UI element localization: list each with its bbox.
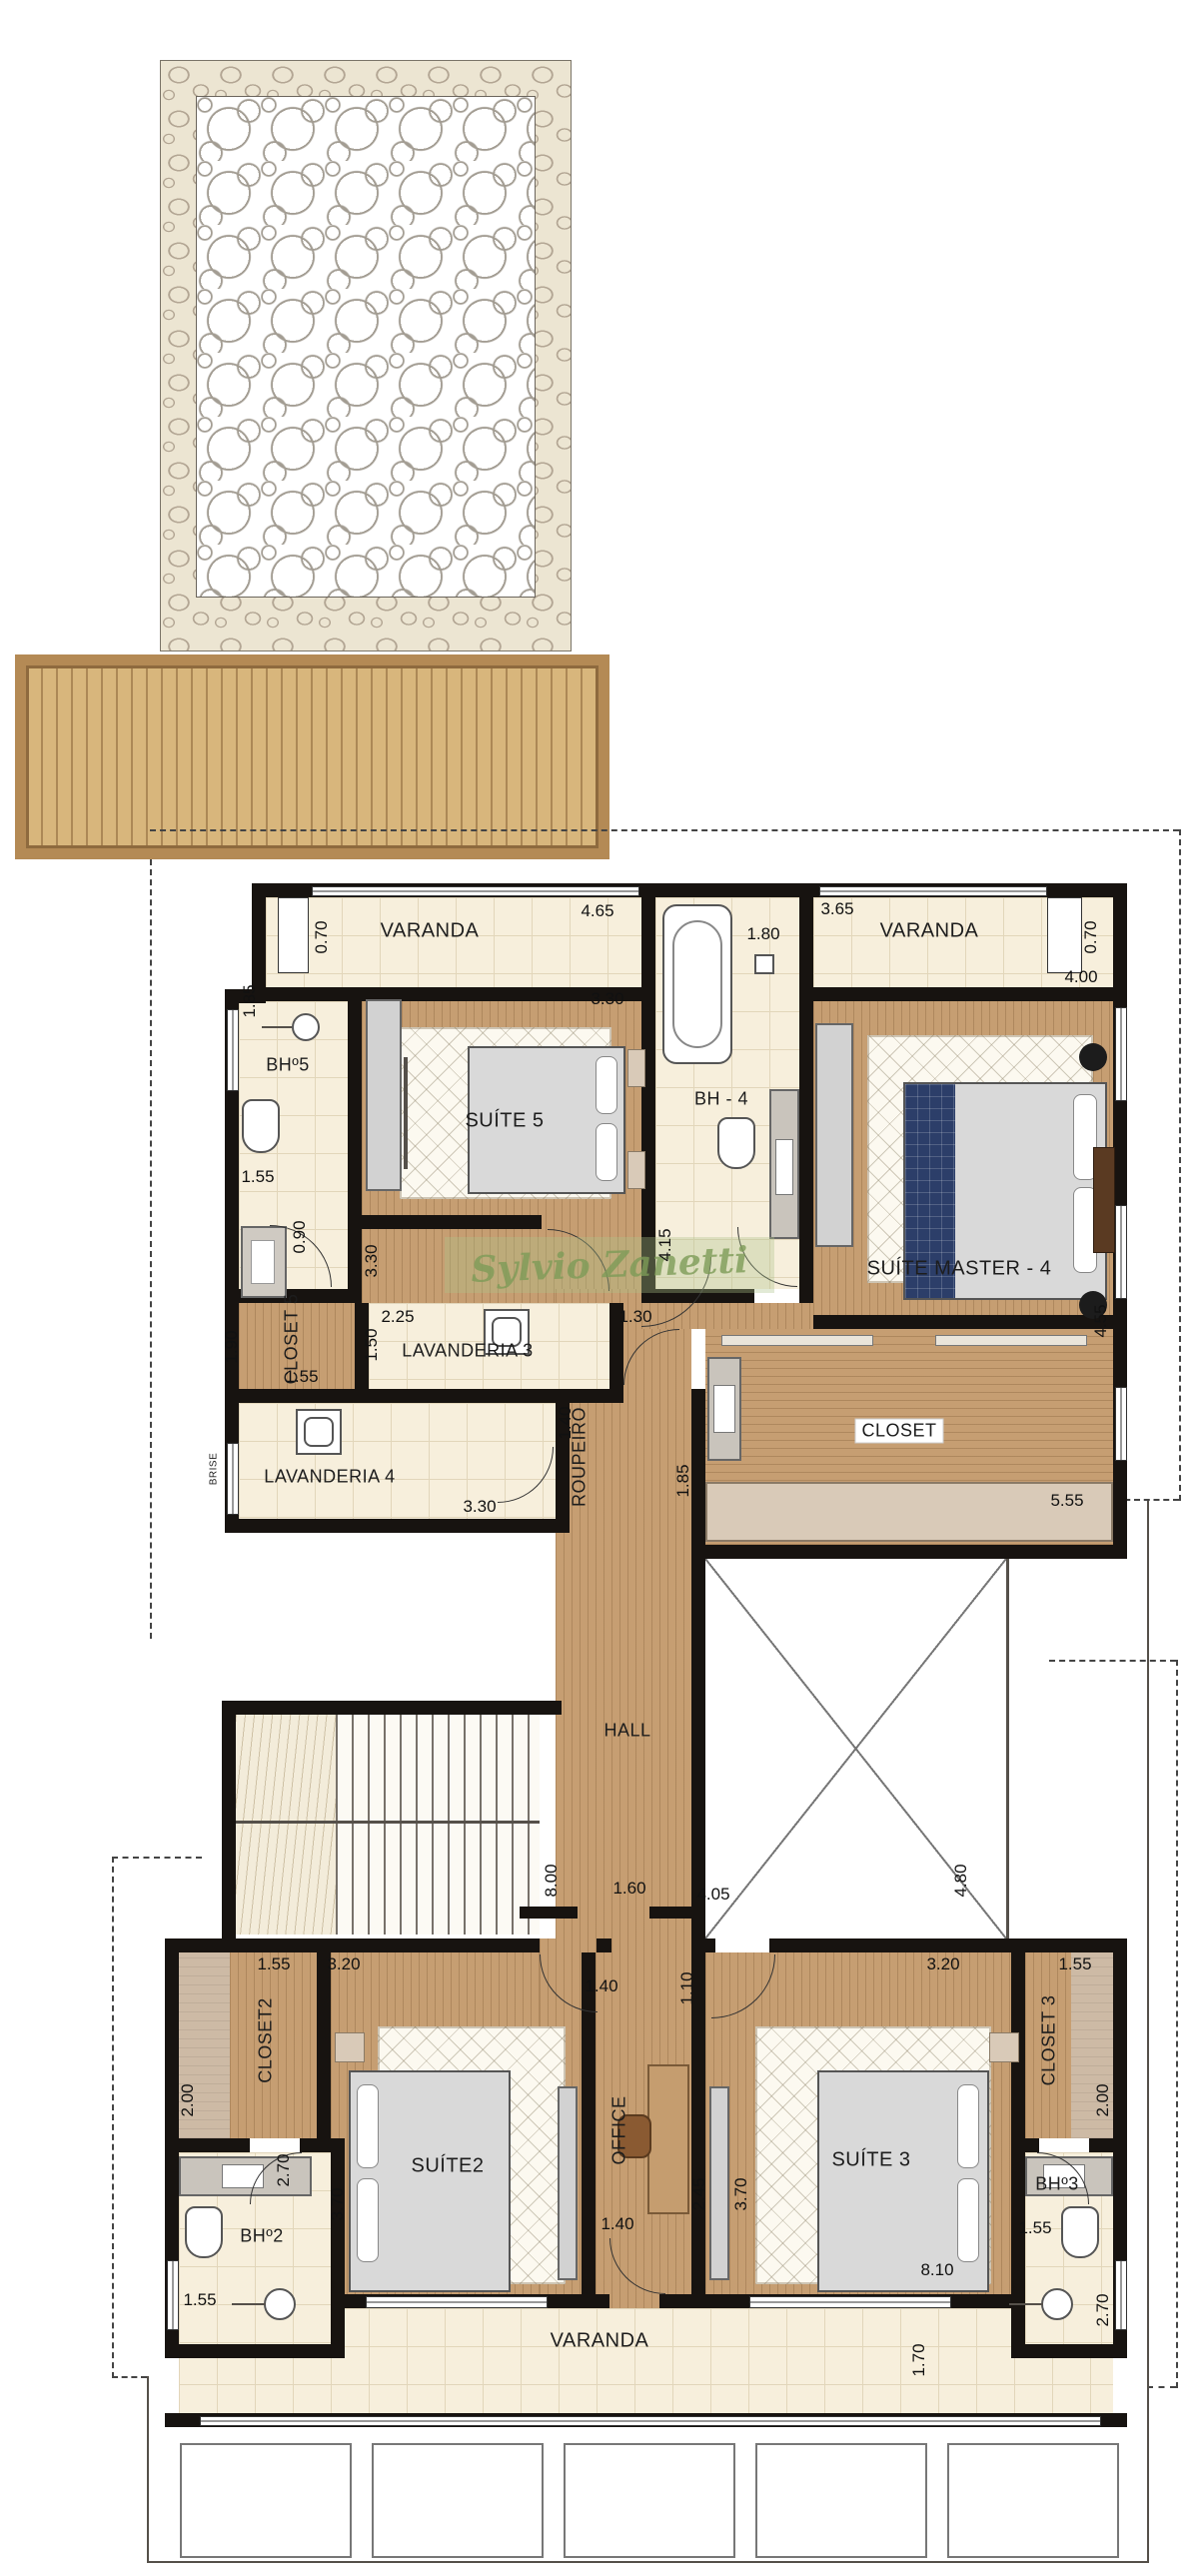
tv-console (1093, 1147, 1115, 1253)
wall (649, 1907, 705, 1919)
stairs (336, 1715, 540, 1934)
room-label-suite3: SUÍTE 3 (831, 2149, 910, 2172)
wall (691, 1389, 705, 1952)
dim-closet2-width: 1.55 (257, 1954, 290, 1974)
terrace-line-left (147, 2376, 149, 2563)
void-right-line (1006, 1559, 1009, 1938)
room-label-suite5: SUÍTE 5 (465, 1110, 544, 1133)
boundary-dashed-lower-right-bottom (1147, 2386, 1176, 2388)
pillow (957, 2178, 979, 2262)
dim-suite2-width: 3.20 (327, 1954, 360, 1974)
room-label-bh2: BHº2 (240, 2226, 284, 2247)
terrace-line-right (1147, 1501, 1149, 2562)
dim-master-width: 4.00 (1064, 967, 1097, 987)
dim-suite5-width: 3.30 (591, 989, 623, 1009)
dim-closet-master-width: 5.55 (1050, 1491, 1083, 1511)
dim-suite2-door: 1.40 (585, 1976, 617, 1996)
wall (222, 1701, 236, 1948)
boundary-dashed-lower-left-bottom (112, 2376, 147, 2378)
dim-lav4-door: 1.40 (556, 1406, 576, 1439)
wall (222, 1701, 562, 1715)
dim-bh2-lower-width: 1.55 (183, 2290, 216, 2310)
closet-rod (935, 1335, 1087, 1346)
dim-varanda-left-depth: 0.70 (312, 920, 332, 953)
dim-bh4-width: 1.80 (746, 924, 779, 944)
dim-suite5-depth: 3.30 (362, 1244, 382, 1277)
toilet (242, 1099, 280, 1153)
room-label-hall: HALL (603, 1721, 650, 1742)
wall (317, 1952, 331, 2152)
dim-varanda-bottom-depth: 1.70 (909, 2343, 929, 2376)
room-label-varanda-right: VARANDA (880, 920, 979, 943)
pillow (357, 2178, 379, 2262)
room-label-lavanderia4: LAVANDERIA 4 (264, 1467, 395, 1488)
dim-bh4-depth: 4.15 (655, 1228, 675, 1261)
dim-master-depth: 4.55 (1091, 1304, 1111, 1337)
window (1115, 2260, 1127, 2330)
wall (225, 1519, 570, 1533)
wall (165, 2344, 345, 2358)
window (749, 2296, 951, 2308)
wardrobe (366, 999, 402, 1191)
wall (165, 2138, 250, 2152)
railing-panel (947, 2443, 1119, 2558)
railing-panel (755, 2443, 927, 2558)
toilet (1061, 2206, 1099, 2258)
dim-bh5-width-top: 1.85 (240, 984, 260, 1017)
closet-rod (721, 1335, 873, 1346)
wall (659, 2294, 705, 2308)
room-label-bh3: BHº3 (1035, 2174, 1079, 2195)
dim-suite3-depth: 3.70 (731, 2177, 751, 2210)
dim-varanda-bottom-width: 8.10 (920, 2260, 953, 2280)
window (1115, 1387, 1127, 1461)
window (1115, 1205, 1127, 1299)
window (366, 2296, 548, 2308)
wall (799, 987, 1127, 1001)
pergola-roof-pattern (196, 96, 536, 598)
wall (1011, 2344, 1127, 2358)
window (200, 2416, 1101, 2426)
dim-closet5-width: 1.55 (285, 1367, 318, 1387)
faucet-line (1009, 2303, 1043, 2305)
wall (1011, 2138, 1025, 2358)
toilet (717, 1117, 755, 1169)
nightstand (989, 2032, 1019, 2062)
boundary-dashed-lower-left (112, 1857, 114, 2378)
terrace-line-bottom (147, 2561, 1149, 2563)
window (1115, 1007, 1127, 1101)
railing-panel (180, 2443, 352, 2558)
room-label-suite2: SUÍTE2 (411, 2155, 484, 2178)
sink-round (264, 2288, 296, 2320)
dim-hall-opening: 1.60 (612, 1879, 645, 1899)
boundary-dashed-right-upper (1179, 829, 1181, 1501)
room-label-closet3: CLOSET 3 (1039, 1995, 1060, 2086)
office-desk (647, 2064, 689, 2214)
boundary-dashed-top (150, 829, 1179, 831)
wardrobe (815, 1023, 853, 1247)
room-label-office: OFFICE (609, 2096, 630, 2165)
room-label-varanda-bottom: VARANDA (551, 2330, 649, 2353)
wall (769, 1938, 1127, 1952)
dim-void-width: 4.05 (696, 1885, 729, 1905)
dim-varanda-right-width: 3.65 (820, 899, 853, 919)
dim-office-depth: 2.45 (689, 2177, 709, 2210)
window (227, 1009, 239, 1091)
wall (362, 1215, 542, 1229)
side-table (1079, 1043, 1107, 1071)
dim-lav3-depth: 1.50 (362, 1328, 382, 1361)
toilet (185, 2206, 223, 2258)
room-label-closet2: CLOSET2 (256, 1997, 277, 2083)
dim-closet5-depth: 1.90 (222, 1330, 242, 1363)
railing-panel (372, 2443, 544, 2558)
pillow (596, 1123, 617, 1181)
dim-stair-well: 8.00 (542, 1864, 562, 1897)
dresser-top (713, 1385, 735, 1433)
dim-bh3-width: 1.55 (1018, 2218, 1051, 2238)
room-label-bh4: BH - 4 (694, 1089, 748, 1110)
dim-void-depth: 4.80 (951, 1864, 971, 1897)
dim-closet2-depth: 2.00 (178, 2083, 198, 2116)
room-label-brise: BRISE (209, 1453, 220, 1486)
dim-suite2-depth: 3.70 (328, 2187, 348, 2220)
wall (705, 1938, 715, 1952)
washer-drum (304, 1417, 334, 1447)
floor-plan: Sylvio Zanetti VARANDA VARANDA VARANDA B… (0, 0, 1199, 2576)
dim-lav3-width: 2.25 (381, 1307, 414, 1327)
room-label-lavanderia3: LAVANDERIA 3 (402, 1341, 533, 1362)
dim-suite3-width: 3.20 (926, 1954, 959, 1974)
nightstand (627, 1049, 645, 1087)
pillow (357, 2084, 379, 2168)
wall (597, 1938, 611, 1952)
nightstand (335, 2032, 365, 2062)
wall (813, 1315, 1127, 1329)
window (312, 886, 639, 896)
pillow (596, 1056, 617, 1114)
dim-lav4-width: 3.30 (463, 1497, 496, 1517)
dim-hall-door-bh4: 1.30 (618, 1307, 651, 1327)
wall (348, 987, 362, 1303)
stair-left-texture (236, 1715, 336, 1934)
boundary-dashed-left-upper (150, 859, 152, 1639)
boundary-dashed-lower-left-top (112, 1857, 202, 1859)
room-label-varanda-left: VARANDA (381, 920, 480, 943)
room-label-closet-master: CLOSET (854, 1419, 943, 1444)
wall (331, 2138, 345, 2358)
dim-closet5-shower: 0.90 (290, 1220, 310, 1253)
faucet-line (262, 1026, 292, 1028)
window (167, 2260, 179, 2330)
tv-panel (404, 1057, 408, 1169)
boundary-dashed-lower-right (1176, 1660, 1178, 2388)
sink-rect (775, 1139, 793, 1195)
dim-closet-master-depth: 1.85 (673, 1464, 693, 1497)
tv-dresser (558, 2086, 578, 2280)
wall (1089, 2138, 1127, 2152)
dim-office-top-door: 1.10 (677, 1971, 697, 2004)
wall (799, 897, 813, 1303)
nightstand (627, 1151, 645, 1189)
dim-office-bottom-door: 1.40 (600, 2214, 633, 2234)
dim-closet3-depth: 2.00 (1093, 2083, 1113, 2116)
dim-varanda-right-depth: 0.70 (1081, 920, 1101, 953)
stair-landing-line (236, 1821, 540, 1824)
brise-window (227, 1443, 239, 1515)
faucet-line (232, 2303, 266, 2305)
dim-closet2-door: 2.70 (274, 2153, 294, 2186)
railing-panel (564, 2443, 735, 2558)
boundary-dashed-lower-right-top (1049, 1660, 1176, 1662)
pillow (957, 2084, 979, 2168)
floor-drain (754, 954, 774, 974)
varanda-left-niche (278, 897, 309, 973)
varanda-right-niche (1047, 897, 1082, 973)
wall (520, 1907, 578, 1919)
sink-round (292, 1013, 320, 1041)
wall (691, 1545, 1127, 1559)
window (819, 886, 1047, 896)
dim-bh3-lower-depth: 2.70 (1093, 2293, 1113, 2326)
dim-bh5-width-bottom: 1.55 (241, 1167, 274, 1187)
room-label-suite-master: SUÍTE MASTER - 4 (867, 1258, 1052, 1281)
room-label-bh5: BHº5 (266, 1055, 310, 1076)
tv-dresser (709, 2086, 729, 2280)
dim-closet3-width: 1.55 (1058, 1954, 1091, 1974)
bathtub-inner (672, 920, 722, 1048)
sink-round (1041, 2288, 1073, 2320)
wall (582, 2294, 609, 2308)
dim-varanda-left-width: 4.65 (581, 901, 613, 921)
